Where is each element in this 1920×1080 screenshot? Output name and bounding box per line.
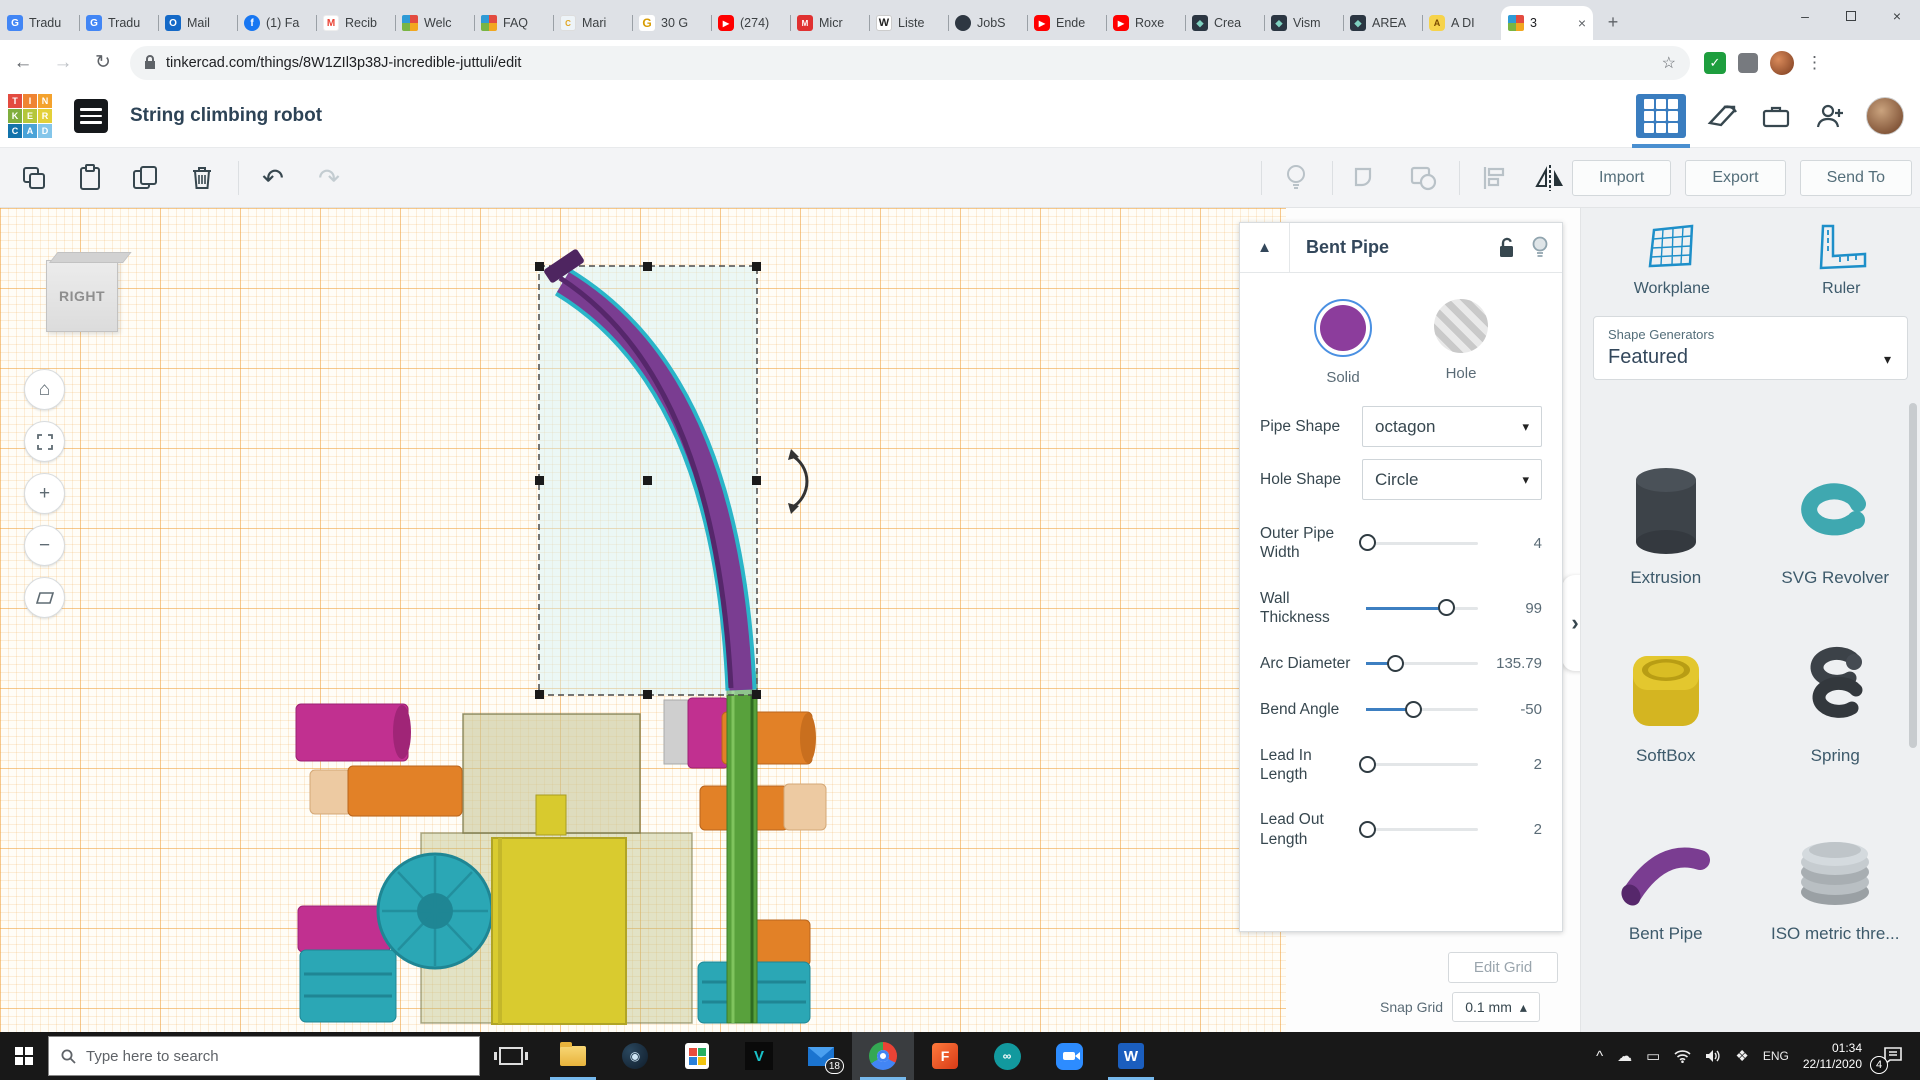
tab-label: 30 G	[661, 16, 704, 30]
taskbar-search[interactable]: Type here to search	[48, 1036, 480, 1076]
undo-button[interactable]: ↶	[251, 158, 295, 198]
zoom-out-button[interactable]: −	[24, 525, 65, 566]
tab-label: Roxe	[1135, 16, 1178, 30]
tab-label: Crea	[1214, 16, 1257, 30]
browser-tab[interactable]: MMicr	[790, 6, 869, 40]
shape-iso-metric-thread[interactable]: ISO metric thre...	[1751, 772, 1920, 950]
slider-value: 135.79	[1496, 655, 1542, 672]
new-tab-button[interactable]: +	[1599, 8, 1627, 36]
caret-down-icon: ▾	[1884, 351, 1891, 368]
gold-g-icon: G	[639, 15, 655, 31]
tab-label: FAQ	[503, 16, 546, 30]
url-bar[interactable]: tinkercad.com/things/8W1ZIl3p38J-incredi…	[130, 46, 1690, 80]
columbia-icon: C	[560, 15, 576, 31]
browser-address-bar: ← → ↻ tinkercad.com/things/8W1ZIl3p38J-i…	[0, 40, 1920, 85]
tinkercad-logo[interactable]: TIN KER CAD	[8, 94, 52, 138]
clock[interactable]: 01:34 22/11/2020	[1803, 1040, 1862, 1072]
model-part-peach-cap[interactable]	[310, 770, 352, 814]
browser-tab[interactable]: ▶(274)	[711, 6, 790, 40]
wifi-icon[interactable]	[1674, 1049, 1691, 1063]
shape-bent-pipe[interactable]: Bent Pipe	[1581, 772, 1751, 950]
panel-scrollbar[interactable]	[1909, 403, 1917, 748]
dark-app-icon: ◆	[1350, 15, 1366, 31]
caret-up-icon: ▴	[1520, 999, 1527, 1016]
notification-badge: 4	[1870, 1056, 1888, 1074]
mirror-icon[interactable]	[1528, 158, 1572, 198]
bent-pipe-thumb	[1618, 830, 1714, 916]
hole-shape-label: Hole Shape	[1260, 470, 1362, 489]
browser-menu-icon[interactable]: ⋮	[1806, 53, 1823, 73]
maximize-icon	[1846, 11, 1856, 21]
visibility-bulb-icon[interactable]	[1532, 236, 1548, 259]
extensions-area: ✓ ⋮	[1704, 51, 1837, 75]
lead-in-length-row: Lead In Length 2	[1240, 746, 1562, 785]
shape-softbox[interactable]: SoftBox	[1581, 594, 1751, 772]
extensions-puzzle-icon[interactable]	[1738, 53, 1758, 73]
tab-label: (1) Fa	[266, 16, 309, 30]
viewport-nav: ⌂ + −	[24, 369, 65, 618]
predator-icon[interactable]: V	[728, 1032, 790, 1080]
slider-label: Bend Angle	[1260, 700, 1362, 719]
outer-pipe-width-slider[interactable]	[1366, 533, 1478, 553]
dark-app-icon: ◆	[1271, 15, 1287, 31]
workplane-icon	[1646, 224, 1698, 270]
browser-tab[interactable]: ◆Crea	[1185, 6, 1264, 40]
search-icon	[61, 1049, 76, 1064]
view-3d-button[interactable]	[1636, 94, 1686, 138]
tab-label: Liste	[898, 16, 941, 30]
windows-taskbar: Type here to search ◉ V 18 F ∞ W ^ ☁ ▭ ❖…	[0, 1032, 1920, 1080]
view-cube[interactable]: RIGHT	[46, 260, 118, 332]
model-part-peach-cap[interactable]	[784, 784, 826, 830]
shape-generators-value: Featured	[1608, 346, 1893, 369]
shape-generators-dropdown[interactable]: Shape Generators Featured ▾	[1593, 316, 1908, 380]
rotate-handle[interactable]	[788, 449, 807, 514]
tab-strip: GTraduGTraduOMailf(1) FaMRecibWelcFAQCMa…	[0, 0, 1593, 40]
browser-tab[interactable]: OMail	[158, 6, 237, 40]
translate-icon: G	[7, 15, 23, 31]
tab-label: Ende	[1056, 16, 1099, 30]
light-mode-icon[interactable]	[1274, 158, 1318, 198]
shape-label: SoftBox	[1636, 746, 1696, 766]
pipe-shape-dropdown[interactable]: octagon ▾	[1362, 406, 1542, 447]
wikipedia-icon: W	[876, 15, 892, 31]
tab-label: AREA	[1372, 16, 1415, 30]
wall-thickness-row: Wall Thickness 99	[1240, 589, 1562, 628]
tinkercad-icon	[402, 15, 418, 31]
solid-color-swatch	[1314, 299, 1372, 357]
pipe-shape-label: Pipe Shape	[1260, 417, 1362, 436]
display-icon[interactable]: ▭	[1646, 1047, 1660, 1065]
microsoft-store-icon[interactable]	[666, 1032, 728, 1080]
shape-spring[interactable]: Spring	[1751, 594, 1920, 772]
slider-value: 2	[1534, 821, 1542, 838]
spring-thumb	[1792, 638, 1878, 738]
hole-swatch	[1434, 299, 1488, 353]
duplicate-icon[interactable]	[124, 158, 168, 198]
slider-label: Lead Out Length	[1260, 810, 1362, 849]
tab-label: Mari	[582, 16, 625, 30]
slider-label: Lead In Length	[1260, 746, 1362, 785]
shape-label: SVG Revolver	[1781, 568, 1889, 588]
shapes-panel: Workplane Ruler Shape Generators Feature…	[1580, 208, 1920, 1032]
browser-tab[interactable]: ◆Vism	[1264, 6, 1343, 40]
caret-down-icon: ▾	[1522, 472, 1529, 488]
model-part-orange-cylinder[interactable]	[348, 766, 462, 816]
briefcase-icon[interactable]	[1758, 98, 1794, 134]
design-menu-icon[interactable]	[74, 99, 108, 133]
add-user-icon[interactable]	[1812, 98, 1848, 134]
tab-close-icon[interactable]: ×	[1578, 15, 1586, 31]
workplane-label: Workplane	[1634, 280, 1710, 298]
time-text: 01:34	[1803, 1040, 1862, 1056]
lead-out-length-slider[interactable]	[1366, 820, 1478, 840]
redo-button[interactable]: ↷	[307, 158, 351, 198]
import-button[interactable]: Import	[1572, 160, 1671, 196]
tab-label: Welc	[424, 16, 467, 30]
toolbar-divider	[238, 161, 239, 195]
softbox-thumb	[1623, 638, 1709, 738]
blocks-editor-icon[interactable]	[1704, 98, 1740, 134]
group-icon[interactable]	[1345, 158, 1389, 198]
system-tray: ^ ☁ ▭ ❖ ENG 01:34 22/11/2020 4	[1596, 1036, 1920, 1076]
dark-app-icon: ◆	[1192, 15, 1208, 31]
lead-in-length-slider[interactable]	[1366, 755, 1478, 775]
solid-option[interactable]: Solid	[1314, 299, 1372, 386]
browser-tab[interactable]: GTradu	[79, 6, 158, 40]
fusion-icon[interactable]: F	[914, 1032, 976, 1080]
slider-label: Arc Diameter	[1260, 654, 1362, 673]
model-part-gray-spacer[interactable]	[664, 700, 688, 764]
shape-label: Extrusion	[1630, 568, 1701, 588]
workplane-tool[interactable]: Workplane	[1634, 224, 1710, 298]
extrusion-thumb	[1623, 460, 1709, 560]
edit-grid-button[interactable]: Edit Grid	[1448, 952, 1558, 983]
language-indicator[interactable]: ENG	[1763, 1049, 1789, 1063]
send-to-button[interactable]: Send To	[1800, 160, 1912, 196]
slider-label: Wall Thickness	[1260, 589, 1362, 628]
close-button[interactable]: ×	[1874, 0, 1920, 32]
inspector-header: ▲ Bent Pipe	[1240, 223, 1562, 273]
youtube-icon: ▶	[1113, 15, 1129, 31]
toolbar-divider	[1261, 161, 1262, 195]
model-part-yellow-slab[interactable]	[492, 838, 626, 1024]
shape-grid: Extrusion SVG Revolver SoftBox	[1581, 400, 1920, 1032]
task-view-button[interactable]	[480, 1032, 542, 1080]
model-part-pink-cylinder[interactable]	[298, 906, 390, 952]
forward-button[interactable]: →	[46, 46, 80, 80]
back-button[interactable]: ←	[6, 46, 40, 80]
arc-diameter-row: Arc Diameter 135.79	[1240, 654, 1562, 674]
tab-label: Micr	[819, 16, 862, 30]
browser-tab[interactable]: MRecib	[316, 6, 395, 40]
hole-option[interactable]: Hole	[1434, 299, 1488, 386]
browser-tab[interactable]: ▶Roxe	[1106, 6, 1185, 40]
slider-value: 2	[1534, 756, 1542, 773]
globe-icon	[955, 15, 971, 31]
tab-label: Mail	[187, 16, 230, 30]
toolbar-divider	[1459, 161, 1460, 195]
tab-label: JobS	[977, 16, 1020, 30]
shape-label: Spring	[1811, 746, 1860, 766]
solid-label: Solid	[1326, 369, 1359, 386]
date-text: 22/11/2020	[1803, 1056, 1862, 1072]
copy-icon[interactable]	[12, 158, 56, 198]
lead-out-length-row: Lead Out Length 2	[1240, 810, 1562, 849]
tab-label: Vism	[1293, 16, 1336, 30]
gmail-icon: M	[323, 15, 339, 31]
tab-label: (274)	[740, 16, 783, 30]
material-selector: Solid Hole	[1240, 273, 1562, 406]
slider-value: 99	[1525, 600, 1542, 617]
volume-icon[interactable]	[1705, 1049, 1721, 1063]
onedrive-cloud-icon[interactable]: ☁	[1617, 1047, 1632, 1065]
snap-grid-value: 0.1 mm	[1465, 999, 1512, 1015]
youtube-icon: ▶	[1034, 15, 1050, 31]
window-controls: – ×	[1782, 0, 1920, 32]
mail-icon[interactable]: 18	[790, 1032, 852, 1080]
zoom-in-button[interactable]: +	[24, 473, 65, 514]
ruler-tool[interactable]: Ruler	[1815, 224, 1867, 298]
tray-expand-icon[interactable]: ^	[1596, 1048, 1603, 1065]
model-part-pink-cylinder[interactable]	[296, 704, 408, 761]
delete-icon[interactable]	[180, 158, 224, 198]
url-text: tinkercad.com/things/8W1ZIl3p38J-incredi…	[166, 55, 521, 71]
browser-tab-active[interactable]: 3×	[1501, 6, 1593, 40]
unlock-icon[interactable]	[1498, 237, 1516, 259]
workplane-view-button[interactable]	[24, 577, 65, 618]
toolbar-divider	[1332, 161, 1333, 195]
design-title[interactable]: String climbing robot	[130, 105, 322, 127]
export-button[interactable]: Export	[1685, 160, 1785, 196]
tab-label: Tradu	[29, 16, 72, 30]
header-right-tools	[1636, 85, 1904, 147]
paste-icon[interactable]	[68, 158, 112, 198]
chrome-icon[interactable]	[852, 1032, 914, 1080]
browser-tab-bar: GTraduGTraduOMailf(1) FaMRecibWelcFAQCMa…	[0, 0, 1920, 40]
shape-generators-label: Shape Generators	[1608, 327, 1893, 342]
shape-svg-revolver[interactable]: SVG Revolver	[1751, 416, 1920, 594]
tab-label: 3	[1530, 16, 1572, 30]
edit-toolbar: ↶ ↷ Import Export Send To	[0, 148, 1920, 208]
collapse-inspector-button[interactable]: ▲	[1240, 223, 1290, 272]
tinkercad-header: TIN KER CAD String climbing robot	[0, 85, 1920, 148]
file-explorer-icon[interactable]	[542, 1032, 604, 1080]
ungroup-icon[interactable]	[1401, 158, 1445, 198]
hole-shape-value: Circle	[1375, 470, 1418, 490]
maximize-button[interactable]	[1828, 0, 1874, 32]
shape-label: ISO metric thre...	[1771, 924, 1899, 944]
view-cube-label: RIGHT	[59, 288, 105, 304]
bookmark-star-icon[interactable]: ☆	[1662, 53, 1676, 73]
collapse-panel-chevron[interactable]: ›	[1562, 575, 1580, 671]
hole-label: Hole	[1446, 365, 1477, 382]
snap-grid-select[interactable]: 0.1 mm ▴	[1452, 992, 1540, 1022]
shape-inspector: ▲ Bent Pipe Solid Hole Pipe Shape octago…	[1239, 222, 1563, 932]
browser-tab[interactable]: ▶Ende	[1027, 6, 1106, 40]
slider-label: Outer Pipe Width	[1260, 524, 1362, 563]
inspector-title: Bent Pipe	[1306, 237, 1389, 258]
svg-revolver-thumb	[1792, 460, 1878, 560]
browser-tab[interactable]: AA DI	[1422, 6, 1501, 40]
action-center-icon[interactable]: 4	[1876, 1036, 1910, 1076]
browser-tab[interactable]: GTradu	[0, 6, 79, 40]
outlook-icon: O	[165, 15, 181, 31]
browser-tab[interactable]: f(1) Fa	[237, 6, 316, 40]
snap-grid-label: Snap Grid	[1380, 999, 1443, 1015]
home-view-button[interactable]: ⌂	[24, 369, 65, 410]
arduino-icon[interactable]: ∞	[976, 1032, 1038, 1080]
steam-icon[interactable]: ◉	[604, 1032, 666, 1080]
facebook-icon: f	[244, 15, 260, 31]
mail-badge: 18	[825, 1058, 844, 1074]
bend-angle-slider[interactable]	[1366, 700, 1478, 720]
model-part-small-block[interactable]	[536, 795, 566, 835]
tab-label: A DI	[1451, 16, 1494, 30]
tinkercad-icon	[481, 15, 497, 31]
shape-label: Bent Pipe	[1629, 924, 1703, 944]
tab-label: Tradu	[108, 16, 151, 30]
shape-extrusion[interactable]: Extrusion	[1581, 416, 1751, 594]
minimize-button[interactable]: –	[1782, 0, 1828, 32]
slider-value: -50	[1520, 701, 1542, 718]
browser-tab[interactable]: ◆AREA	[1343, 6, 1422, 40]
bend-angle-row: Bend Angle -50	[1240, 700, 1562, 720]
lock-icon	[144, 55, 156, 70]
fit-view-button[interactable]	[24, 421, 65, 462]
robot-icon: A	[1429, 15, 1445, 31]
slider-value: 4	[1534, 535, 1542, 552]
outer-pipe-width-row: Outer Pipe Width 4	[1240, 524, 1562, 563]
ruler-icon	[1815, 224, 1867, 270]
align-icon[interactable]	[1472, 158, 1516, 198]
extension-check-icon[interactable]: ✓	[1704, 52, 1726, 74]
word-icon[interactable]: W	[1100, 1032, 1162, 1080]
iso-thread-thumb	[1790, 830, 1880, 916]
arc-diameter-slider[interactable]	[1366, 654, 1478, 674]
wall-thickness-slider[interactable]	[1366, 598, 1478, 618]
browser-tab[interactable]: JobS	[948, 6, 1027, 40]
start-button[interactable]	[0, 1032, 48, 1080]
zoom-app-icon[interactable]	[1038, 1032, 1100, 1080]
tab-label: Recib	[345, 16, 388, 30]
browser-tab[interactable]: G30 G	[632, 6, 711, 40]
caret-down-icon: ▾	[1522, 419, 1529, 435]
reload-button[interactable]: ↻	[86, 46, 120, 80]
snap-grid-row: Snap Grid 0.1 mm ▴	[1380, 992, 1540, 1022]
browser-tab[interactable]: Welc	[395, 6, 474, 40]
hole-shape-dropdown[interactable]: Circle ▾	[1362, 459, 1542, 500]
browser-profile-avatar[interactable]	[1770, 51, 1794, 75]
youtube-icon: ▶	[718, 15, 734, 31]
tinkercad-icon	[1508, 15, 1524, 31]
search-placeholder: Type here to search	[86, 1048, 219, 1065]
user-avatar[interactable]	[1866, 97, 1904, 135]
pipe-shape-value: octagon	[1375, 417, 1436, 437]
red-app-icon: M	[797, 15, 813, 31]
browser-tab[interactable]: WListe	[869, 6, 948, 40]
browser-tab[interactable]: FAQ	[474, 6, 553, 40]
model-part-teal-cylinder[interactable]	[300, 950, 396, 1022]
dropbox-icon[interactable]: ❖	[1735, 1047, 1748, 1065]
ruler-label: Ruler	[1822, 280, 1860, 298]
browser-tab[interactable]: CMari	[553, 6, 632, 40]
translate-icon: G	[86, 15, 102, 31]
screen: GTraduGTraduOMailf(1) FaMRecibWelcFAQCMa…	[0, 0, 1920, 1080]
